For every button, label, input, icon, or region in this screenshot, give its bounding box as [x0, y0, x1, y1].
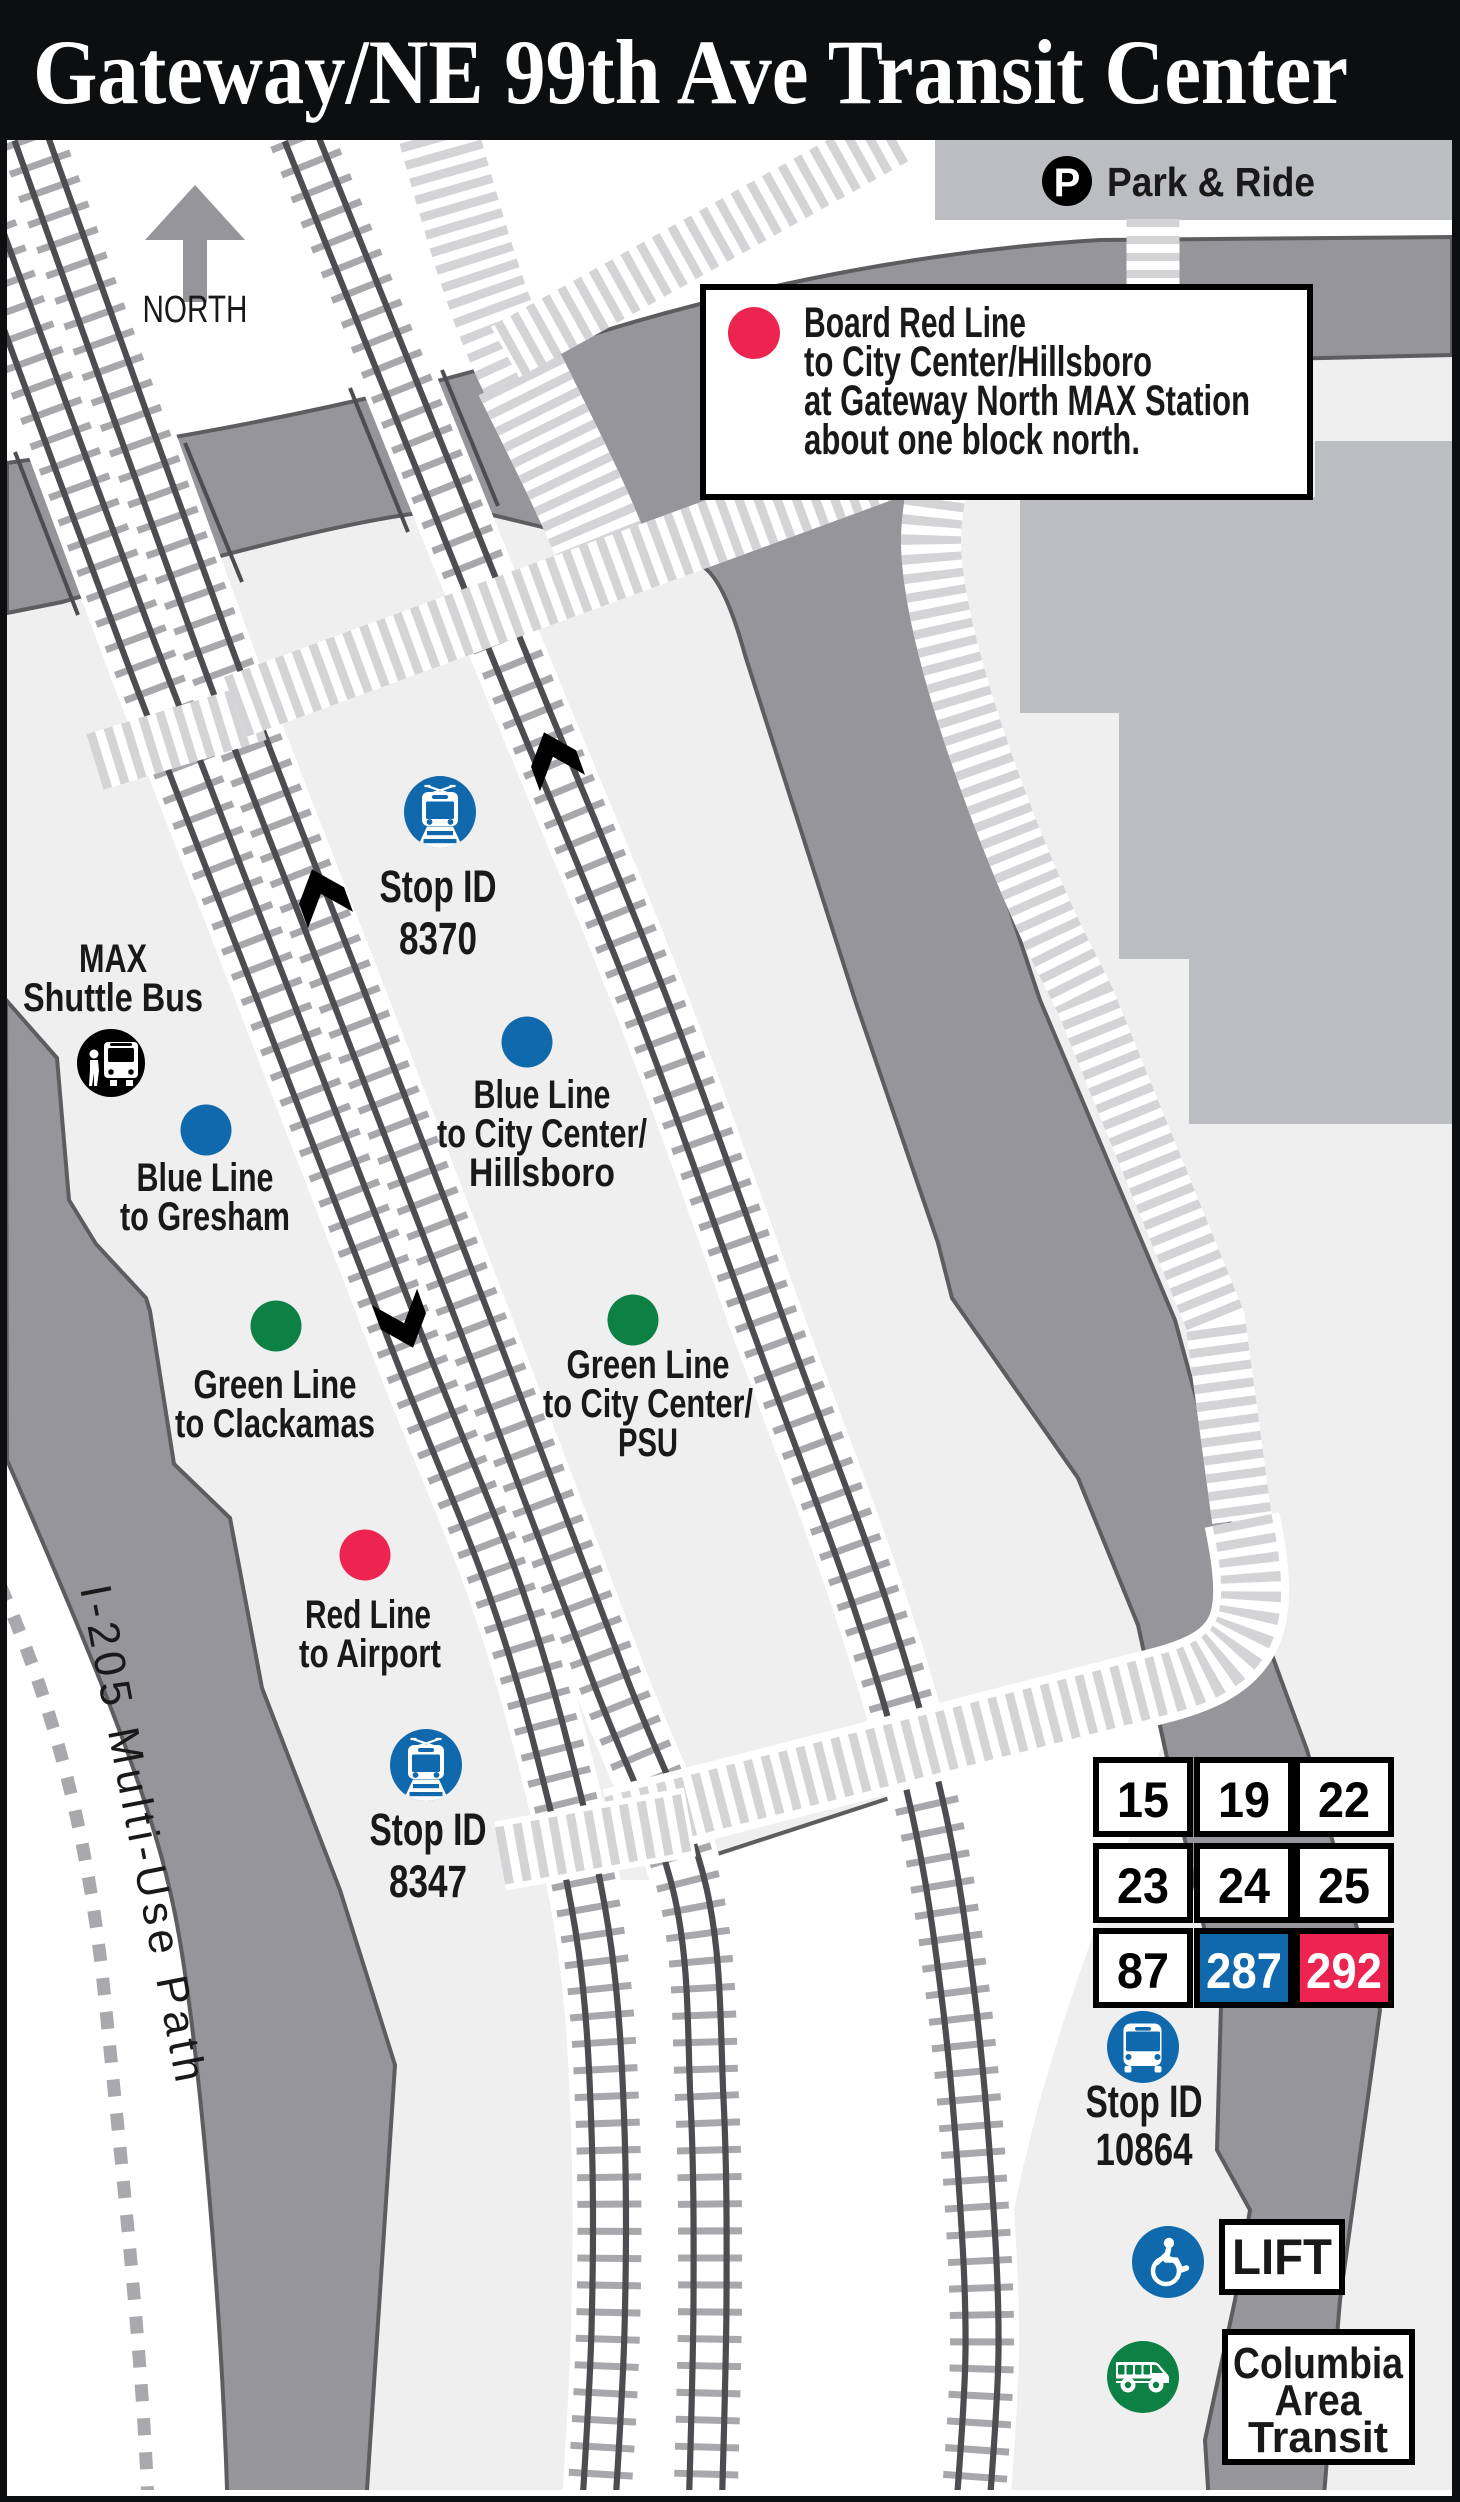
svg-text:to Gresham: to Gresham	[120, 1195, 290, 1239]
svg-text:P: P	[1054, 161, 1081, 205]
svg-text:Transit: Transit	[1248, 2413, 1388, 2462]
svg-text:to City Center/: to City Center/	[543, 1382, 753, 1426]
svg-text:to Airport: to Airport	[299, 1632, 441, 1676]
svg-text:to Clackamas: to Clackamas	[175, 1402, 375, 1446]
svg-text:Green Line: Green Line	[194, 1363, 357, 1407]
svg-text:Park & Ride: Park & Ride	[1107, 159, 1315, 205]
svg-text:24: 24	[1218, 1858, 1270, 1914]
svg-text:19: 19	[1218, 1772, 1270, 1828]
svg-text:25: 25	[1318, 1858, 1370, 1914]
svg-text:Red Line: Red Line	[305, 1593, 431, 1637]
svg-text:Hillsboro: Hillsboro	[469, 1151, 615, 1195]
svg-text:Shuttle Bus: Shuttle Bus	[23, 976, 203, 1020]
svg-text:Stop ID: Stop ID	[1086, 2076, 1203, 2127]
svg-text:PSU: PSU	[618, 1421, 678, 1465]
svg-text:8347: 8347	[389, 1856, 467, 1907]
svg-text:MAX: MAX	[79, 937, 147, 981]
svg-text:22: 22	[1318, 1772, 1370, 1828]
svg-text:about one block north.: about one block north.	[804, 416, 1140, 464]
svg-text:Blue Line: Blue Line	[474, 1073, 611, 1117]
svg-text:87: 87	[1117, 1943, 1169, 1999]
svg-text:LIFT: LIFT	[1232, 2229, 1332, 2285]
svg-text:NORTH: NORTH	[143, 289, 248, 331]
svg-text:292: 292	[1306, 1943, 1382, 1999]
svg-text:Blue Line: Blue Line	[137, 1156, 274, 1200]
svg-text:287: 287	[1206, 1943, 1282, 1999]
svg-text:8370: 8370	[399, 913, 477, 964]
svg-text:23: 23	[1117, 1858, 1169, 1914]
svg-text:Stop ID: Stop ID	[370, 1804, 487, 1855]
svg-text:Gateway/NE 99th Ave Transit Ce: Gateway/NE 99th Ave Transit Center	[33, 21, 1348, 123]
svg-text:Green Line: Green Line	[567, 1343, 730, 1387]
svg-text:10864: 10864	[1096, 2124, 1193, 2175]
svg-text:Stop ID: Stop ID	[380, 861, 497, 912]
svg-text:to City Center/: to City Center/	[437, 1112, 647, 1156]
svg-text:15: 15	[1117, 1772, 1169, 1828]
